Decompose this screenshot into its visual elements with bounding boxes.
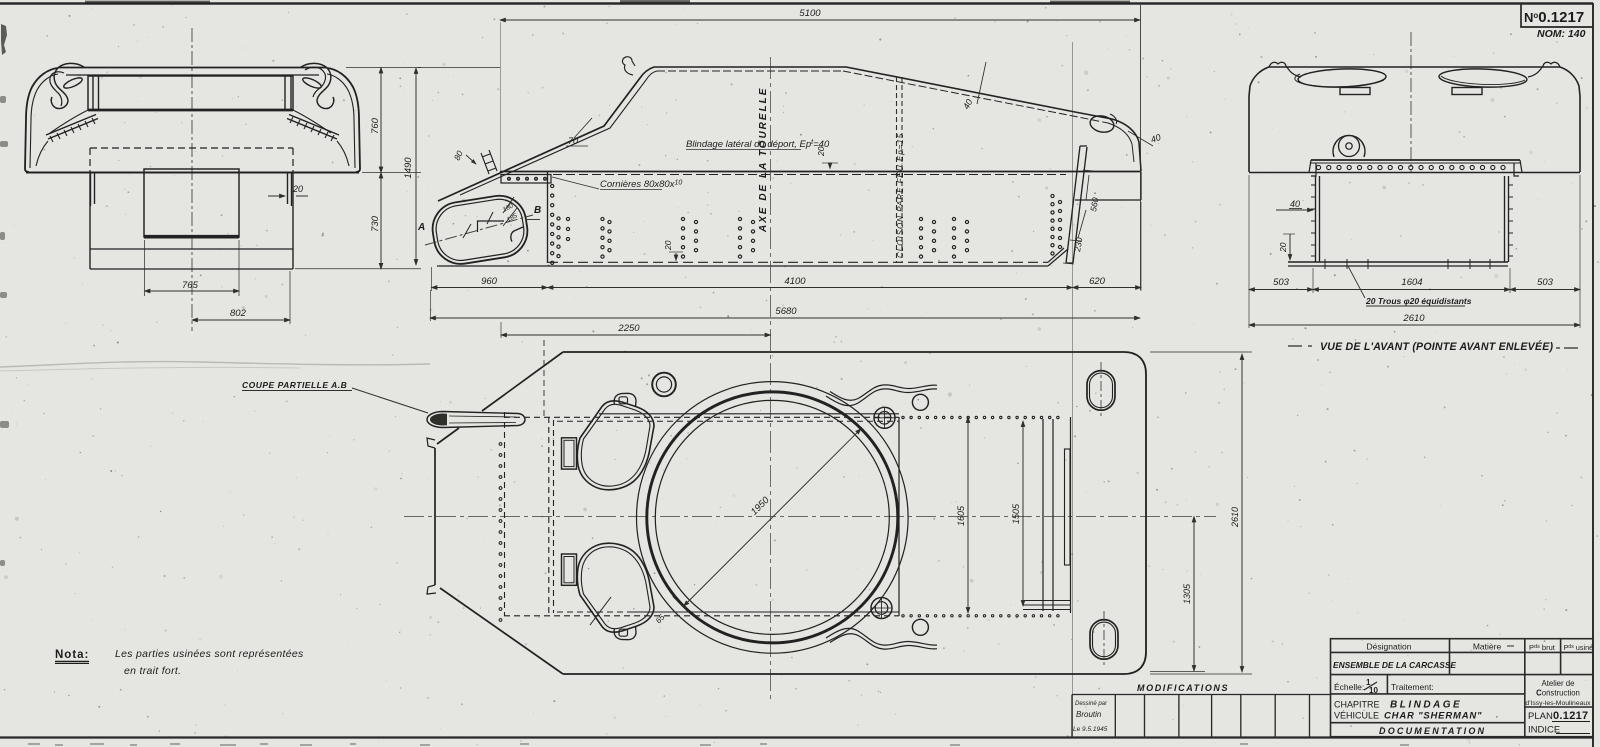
svg-text:Cornières 80x80x10: Cornières 80x80x10: [600, 179, 682, 190]
svg-text:COUPE PARTIELLE A.B: COUPE PARTIELLE A.B: [242, 380, 347, 390]
svg-text:en trait fort.: en trait fort.: [124, 665, 181, 677]
svg-text:Nota:: Nota:: [55, 649, 89, 661]
svg-text:70: 70: [568, 136, 578, 146]
svg-text:A: A: [417, 222, 425, 233]
svg-text:765: 765: [182, 280, 199, 291]
svg-text:BLINDAGE: BLINDAGE: [1390, 700, 1462, 711]
svg-text:20 Trous φ20 équidistants: 20 Trous φ20 équidistants: [1365, 296, 1472, 306]
svg-text:802: 802: [230, 308, 247, 319]
svg-text:10: 10: [1369, 686, 1378, 695]
svg-text:503: 503: [1273, 277, 1290, 288]
svg-text:CHAPITRE: CHAPITRE: [1334, 700, 1380, 710]
svg-text:PLAN: PLAN: [1528, 711, 1553, 722]
svg-text:No0.1217: No0.1217: [1524, 9, 1584, 26]
svg-text:NOM: 140: NOM: 140: [1537, 28, 1586, 40]
svg-text:1604: 1604: [1401, 277, 1422, 288]
svg-text:1505: 1505: [1011, 503, 1021, 524]
svg-text:1490: 1490: [403, 157, 414, 179]
svg-text:20: 20: [292, 184, 303, 194]
svg-text:40: 40: [1290, 199, 1300, 209]
svg-text:Construction: Construction: [1536, 689, 1580, 698]
svg-text:ENSEMBLE DE LA CARCASSE: ENSEMBLE DE LA CARCASSE: [1333, 660, 1456, 670]
svg-text:20: 20: [1278, 242, 1288, 253]
svg-text:INDICE: INDICE: [1528, 725, 1560, 736]
svg-text:VÉHICULE: VÉHICULE: [1334, 711, 1379, 721]
svg-text:760: 760: [370, 117, 381, 134]
svg-text:Pds usiné: Pds usiné: [1564, 643, 1594, 652]
svg-text:Matière: Matière: [1473, 642, 1502, 652]
svg-text:2610: 2610: [1230, 507, 1240, 528]
svg-text:4100: 4100: [784, 276, 806, 287]
svg-text:620: 620: [1089, 276, 1106, 287]
svg-text:Pds brut: Pds brut: [1529, 643, 1556, 652]
svg-text:Le 9.5.1945: Le 9.5.1945: [1073, 726, 1108, 733]
svg-text:DOCUMENTATION: DOCUMENTATION: [1379, 726, 1486, 736]
svg-text:503: 503: [1537, 277, 1554, 288]
svg-text:Dessiné par: Dessiné par: [1075, 701, 1108, 707]
svg-text:Désignation: Désignation: [1367, 642, 1412, 652]
svg-text:730: 730: [370, 215, 381, 232]
svg-text:5100: 5100: [799, 8, 821, 19]
svg-text:Broutin: Broutin: [1076, 710, 1102, 719]
svg-text:d'Issy-les-Moulineaux: d'Issy-les-Moulineaux: [1525, 700, 1591, 707]
svg-text:Atelier de: Atelier de: [1542, 679, 1575, 688]
svg-text:20: 20: [816, 146, 826, 157]
svg-text:MODIFICATIONS: MODIFICATIONS: [1137, 683, 1229, 693]
svg-text:CHAR "SHERMAN": CHAR "SHERMAN": [1384, 711, 1482, 722]
svg-text:Traitement:: Traitement:: [1391, 682, 1434, 692]
svg-text:960: 960: [481, 276, 498, 287]
svg-text:2250: 2250: [617, 323, 640, 334]
svg-text:5680: 5680: [775, 306, 797, 317]
svg-text:AXE DE LA TOURELLE: AXE DE LA TOURELLE: [758, 87, 769, 233]
svg-text:CLOISON PARE FEU Ep=15: CLOISON PARE FEU Ep=15: [896, 133, 905, 258]
svg-text:Les parties usinées sont r: Les parties usinées sont représentées: [115, 648, 304, 660]
svg-text:1605: 1605: [956, 505, 966, 526]
svg-text:20: 20: [663, 240, 673, 251]
svg-text:Échelle:: Échelle:: [1334, 682, 1364, 692]
svg-text:VUE DE L'AVANT (POINTE AVANT E: VUE DE L'AVANT (POINTE AVANT ENLEVÉE): [1320, 340, 1553, 353]
svg-text:B: B: [534, 205, 541, 216]
svg-text:2610: 2610: [1402, 313, 1425, 324]
svg-text:0.1217: 0.1217: [1553, 710, 1588, 722]
svg-text:1305: 1305: [1182, 583, 1192, 604]
